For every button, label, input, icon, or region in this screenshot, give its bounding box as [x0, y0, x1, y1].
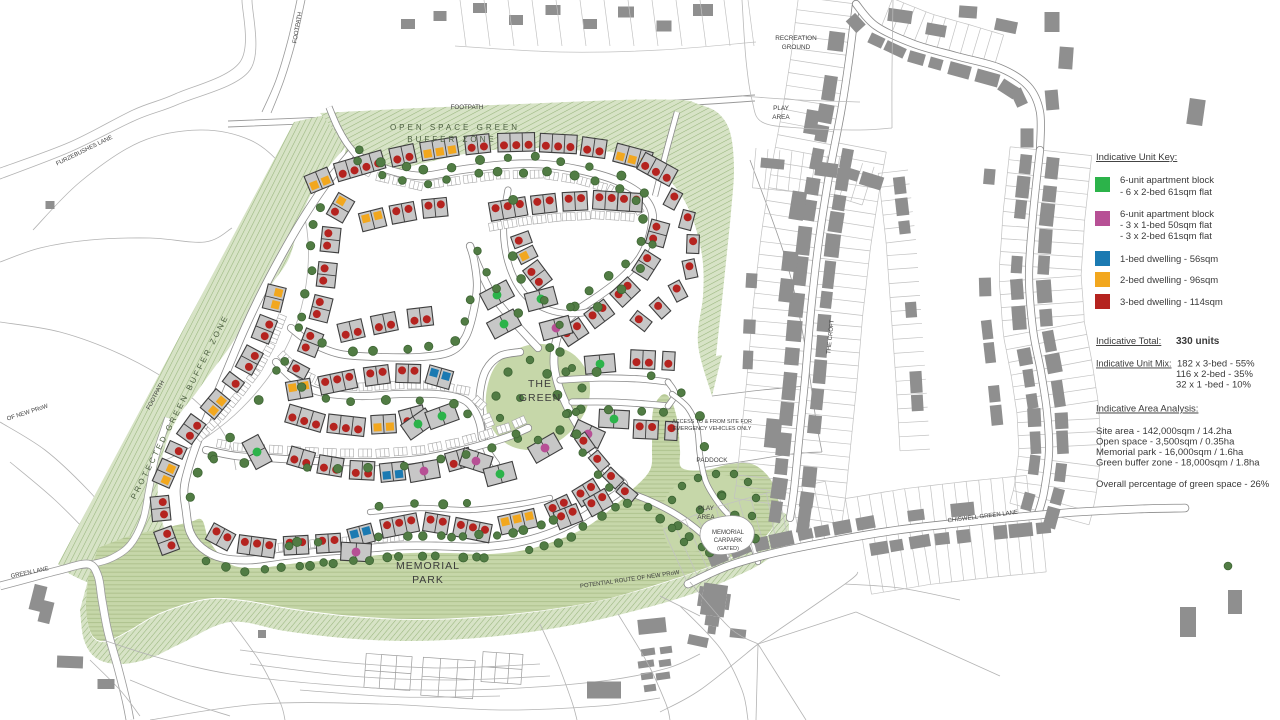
svg-text:PLAY: PLAY: [773, 105, 790, 112]
svg-text:Indicative Total:: Indicative Total:: [1096, 336, 1161, 347]
svg-text:PLAY: PLAY: [698, 505, 715, 512]
svg-text:Green buffer zone - 18,000sqm: Green buffer zone - 18,000sqm / 1.8ha: [1096, 458, 1260, 469]
svg-text:Site area - 142,000sqm / 14.2h: Site area - 142,000sqm / 14.2ha: [1096, 426, 1232, 437]
svg-text:Memorial park - 16,000sqm / 1.: Memorial park - 16,000sqm / 1.6ha: [1096, 447, 1244, 458]
svg-text:GREEN: GREEN: [519, 392, 561, 404]
svg-text:- 3 x 1-bed 50sqm flat: - 3 x 1-bed 50sqm flat: [1120, 220, 1212, 231]
svg-text:PADDOCK: PADDOCK: [696, 457, 728, 464]
svg-text:FOOTPATH: FOOTPATH: [451, 104, 484, 111]
svg-text:Indicative Unit Key:: Indicative Unit Key:: [1096, 152, 1177, 163]
svg-text:182 x 3-bed - 55%: 182 x 3-bed - 55%: [1177, 359, 1255, 370]
svg-text:1-bed dwelling - 56sqm: 1-bed dwelling - 56sqm: [1120, 254, 1218, 265]
svg-text:Overall percentage of green sp: Overall percentage of green space - 26%: [1096, 479, 1270, 490]
svg-text:GROUND: GROUND: [782, 44, 811, 51]
svg-text:MEMORIAL: MEMORIAL: [712, 530, 745, 536]
svg-text:- 3 x 2-bed 61sqm flat: - 3 x 2-bed 61sqm flat: [1120, 231, 1212, 242]
svg-text:Open space - 3,500sqm / 0.35ha: Open space - 3,500sqm / 0.35ha: [1096, 437, 1235, 448]
svg-text:OPEN SPACE GREEN: OPEN SPACE GREEN: [390, 123, 520, 132]
svg-text:Indicative Area Analysis:: Indicative Area Analysis:: [1096, 404, 1198, 415]
svg-text:EMERGENCY VEHICLES ONLY: EMERGENCY VEHICLES ONLY: [673, 426, 752, 432]
svg-text:AREA: AREA: [772, 114, 790, 121]
svg-text:116 x 2-bed - 35%: 116 x 2-bed - 35%: [1176, 369, 1253, 380]
svg-text:PARK: PARK: [412, 574, 444, 586]
svg-text:ACCESS TO & FROM SITE FOR: ACCESS TO & FROM SITE FOR: [672, 419, 752, 425]
svg-text:330 units: 330 units: [1176, 336, 1220, 347]
svg-text:BUFFER ZONE: BUFFER ZONE: [407, 135, 496, 144]
svg-text:- 6 x 2-bed 61sqm flat: - 6 x 2-bed 61sqm flat: [1120, 187, 1212, 198]
svg-text:2-bed dwelling - 96sqm: 2-bed dwelling - 96sqm: [1120, 275, 1218, 286]
svg-text:32 x 1 -bed - 10%: 32 x 1 -bed - 10%: [1176, 380, 1252, 391]
svg-text:MEMORIAL: MEMORIAL: [396, 560, 460, 572]
svg-text:6-unit apartment block: 6-unit apartment block: [1120, 209, 1214, 220]
svg-text:THE: THE: [528, 378, 552, 390]
svg-text:Indicative Unit Mix:: Indicative Unit Mix:: [1096, 359, 1172, 369]
svg-text:CARPARK: CARPARK: [714, 538, 743, 544]
svg-text:6-unit apartment block: 6-unit apartment block: [1120, 175, 1214, 186]
svg-text:(GATED): (GATED): [717, 546, 739, 552]
svg-text:RECREATION: RECREATION: [775, 35, 817, 42]
svg-text:3-bed dwelling - 114sqm: 3-bed dwelling - 114sqm: [1120, 297, 1223, 308]
